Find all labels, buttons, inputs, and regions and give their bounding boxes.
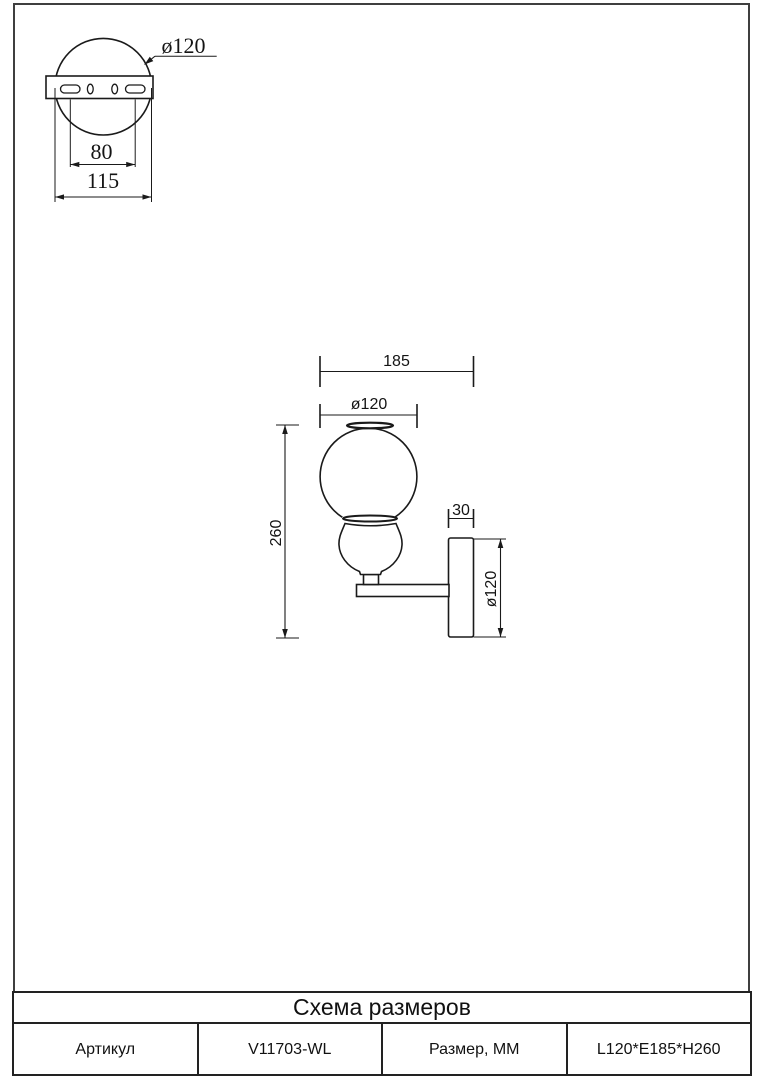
slot-hole-left — [61, 85, 81, 93]
globe-top-cap — [347, 423, 393, 429]
cell-size-value: L120*E185*H260 — [568, 1024, 751, 1076]
vase-diffuser — [339, 524, 402, 575]
table-row: Артикул V11703-WL Размер, ММ L120*E185*H… — [14, 1024, 750, 1076]
cell-article-value: V11703-WL — [199, 1024, 384, 1076]
title-block-table: Схема размеров Артикул V11703-WL Размер,… — [12, 991, 752, 1076]
dim-label-hole-spacing: 80 — [91, 141, 113, 163]
dim-label-plate-diameter: ø120 — [484, 570, 500, 606]
mounting-plate-detail-view — [46, 38, 217, 202]
sconce-side-view — [276, 356, 506, 638]
technical-drawing — [0, 0, 763, 1080]
dimension-drawing-sheet: ø120 80 115 185 ø120 30 ø120 260 Схема р… — [0, 0, 763, 1080]
lamp-connector — [364, 575, 379, 585]
dim-label-bracket-width: 115 — [87, 170, 119, 192]
wall-plate — [449, 538, 474, 637]
table-title: Схема размеров — [14, 993, 750, 1024]
dim-label-overall-height: 260 — [269, 519, 285, 546]
globe-bottom-ring — [343, 516, 397, 522]
glass-globe — [320, 428, 417, 525]
lamp-arm — [357, 585, 450, 597]
dim-label-overall-depth: 185 — [383, 354, 410, 370]
dim-label-plate-thickness: 30 — [452, 503, 470, 519]
dim-label-detail-diameter: ø120 — [162, 35, 206, 57]
cell-size-label: Размер, ММ — [383, 1024, 568, 1076]
dim-label-globe-diameter: ø120 — [351, 397, 387, 413]
cell-article-label: Артикул — [14, 1024, 199, 1076]
slot-hole-right — [126, 85, 146, 93]
